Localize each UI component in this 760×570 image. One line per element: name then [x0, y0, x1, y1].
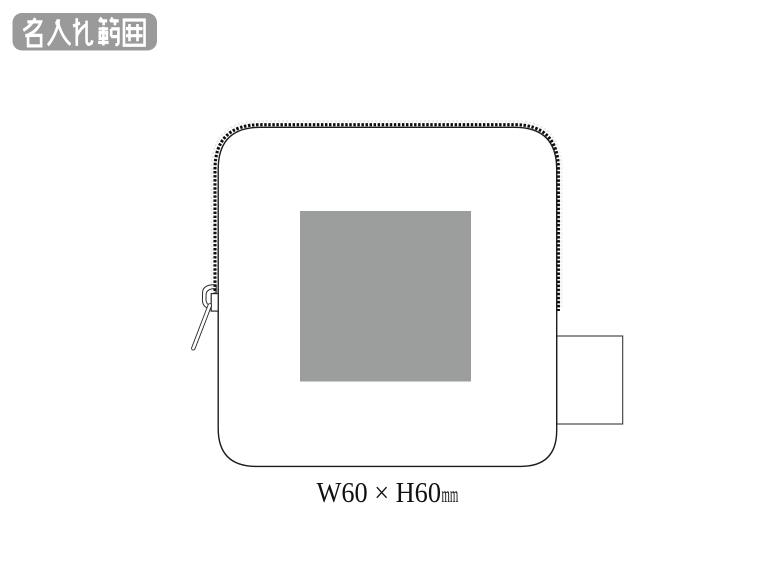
svg-text:W60 × H60: W60 × H60: [317, 478, 442, 509]
svg-text:mm: mm: [442, 482, 459, 507]
